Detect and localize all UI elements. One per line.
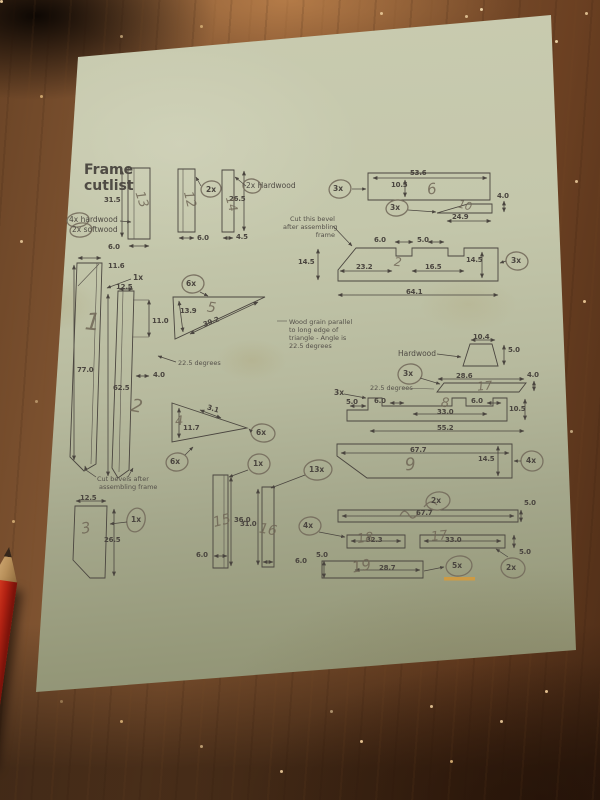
part7-angle-note: 22.5 degrees: [370, 384, 413, 392]
part3-width-dim: 12.5: [80, 494, 96, 502]
bevels-note-line1: Cut bevels after: [97, 475, 149, 483]
part6-height-dim: 10.5: [391, 181, 407, 189]
part5-qty: 6x: [186, 279, 196, 288]
part2r-top1-dim: 6.0: [374, 236, 386, 244]
row2-height-dim: 5.0: [519, 548, 531, 556]
hardwood-length-dim: 10.4: [473, 333, 489, 341]
part5-side-dim: 13.9: [180, 307, 196, 315]
pencil-lead: [4, 546, 13, 557]
row2-pencil-num2: 17: [430, 528, 448, 545]
part2r-total-dim: 64.1: [406, 288, 422, 296]
part2l-top-dim: 12.5: [116, 283, 132, 291]
part2l-height-dim: 62.5: [113, 384, 129, 392]
part2r-seg2-dim: 16.5: [425, 263, 441, 271]
bar16-width-dim: 6.0: [295, 557, 307, 565]
row3-qty-a: 5x: [452, 561, 462, 570]
part8-tab2-dim: 6.0: [471, 397, 483, 405]
bar16-height-dim: 31.0: [240, 520, 256, 528]
part3-qty: 1x: [131, 515, 141, 524]
part9-pencil-num: 9: [404, 454, 417, 475]
materials-line2: 2x softwood: [72, 225, 118, 234]
bar1-height-dim: 31.5: [104, 196, 120, 204]
part8-height-dim: 10.5: [509, 405, 525, 413]
grain-note-line3: triangle - Angle is: [289, 334, 346, 342]
part7-pencil-num: 17: [476, 378, 492, 393]
part4-pencil-num: 4: [174, 414, 184, 430]
row1-height-dim: 5.0: [524, 499, 536, 507]
bar16-pencil-num: 16: [258, 521, 278, 540]
part1-pencil-num: 1: [84, 307, 102, 336]
row3-pencil-num: 19: [351, 555, 373, 576]
part2l-notch-h-dim: 11.0: [152, 317, 168, 325]
grain-note-line1: Wood grain parallel: [289, 318, 352, 326]
part2r-qty: 3x: [511, 256, 521, 265]
bar3-label: 2x Hardwood: [246, 181, 296, 190]
part1-height-dim: 77.0: [77, 366, 93, 374]
row3-length-dim: 28.7: [379, 564, 395, 572]
bar16-qty: 13x: [309, 465, 324, 474]
part2l-angle-note: 22.5 degrees: [178, 359, 221, 367]
part6-qty: 3x: [333, 184, 343, 193]
part6-strip-height-dim: 4.0: [497, 192, 509, 200]
part2r-seg1-dim: 23.2: [356, 263, 372, 271]
grain-note-line2: to long edge of: [289, 326, 338, 334]
part9-qty: 4x: [526, 456, 536, 465]
grain-note-line4: 22.5 degrees: [289, 342, 332, 350]
bevels-note-line2: assembling frame: [99, 483, 157, 491]
part2r-left-dim: 14.5: [298, 258, 314, 266]
part8-left-dim: 5.0: [346, 398, 358, 406]
bevel-note-line2: after assembling: [283, 223, 335, 231]
photo-scene: Frame cutlist 4x hardwood 2x softwood 31…: [0, 0, 600, 800]
part7-length-dim: 28.6: [456, 372, 472, 380]
part7-qty: 3x: [403, 369, 413, 378]
part4-qty-b: 6x: [170, 457, 180, 466]
part6-strip-length-dim: 24.9: [452, 213, 468, 221]
part8-tab1-dim: 6.0: [374, 397, 386, 405]
part6-length-dim: 53.6: [410, 169, 426, 177]
part6-strip-qty: 3x: [390, 203, 400, 212]
bevel-note-line3: frame: [283, 231, 335, 239]
row3-qty-b: 2x: [506, 563, 516, 572]
materials-line1: 4x hardwood: [69, 215, 118, 224]
hardwood-height-dim: 5.0: [508, 346, 520, 354]
part3-height-dim: 26.5: [104, 536, 120, 544]
part8-pencil-num: 8: [440, 396, 450, 412]
part8-total-dim: 55.2: [437, 424, 453, 432]
row2-pencil-num1: 18: [356, 530, 374, 547]
part2r-top2-dim: 5.0: [417, 236, 429, 244]
part4-qty-a: 6x: [256, 428, 266, 437]
bar1-width-dim: 6.0: [108, 243, 120, 251]
sawdust-speckles: [0, 0, 3, 3]
part2r-right-dim: 14.5: [466, 256, 482, 264]
part9-height-dim: 14.5: [478, 455, 494, 463]
part1-qty: 1x: [133, 273, 143, 282]
row2-qty: 4x: [303, 521, 313, 530]
bar2-qty: 2x: [206, 185, 216, 194]
part8-qty: 3x: [334, 388, 344, 397]
part7-height-dim: 4.0: [527, 371, 539, 379]
row1-length-dim: 67.7: [416, 509, 432, 517]
part1-top-dim: 11.6: [108, 262, 124, 270]
part2r-pencil-num: 2: [393, 255, 402, 270]
row1-qty: 2x: [431, 496, 441, 505]
part9-length-dim: 67.7: [410, 446, 426, 454]
row3-height-dim: 5.0: [316, 551, 328, 559]
part4-side-dim: 11.7: [183, 424, 199, 432]
bar3-width-dim: 4.5: [236, 233, 248, 241]
part2l-notch-w-dim: 4.0: [153, 371, 165, 379]
hardwood-label: Hardwood: [398, 349, 436, 358]
bar15-qty: 1x: [253, 459, 263, 468]
bar15-width-dim: 6.0: [196, 551, 208, 559]
bar2-width-dim: 6.0: [197, 234, 209, 242]
pencil-tip-wood: [0, 546, 22, 583]
bevel-note-line1: Cut this bevel: [283, 215, 335, 223]
